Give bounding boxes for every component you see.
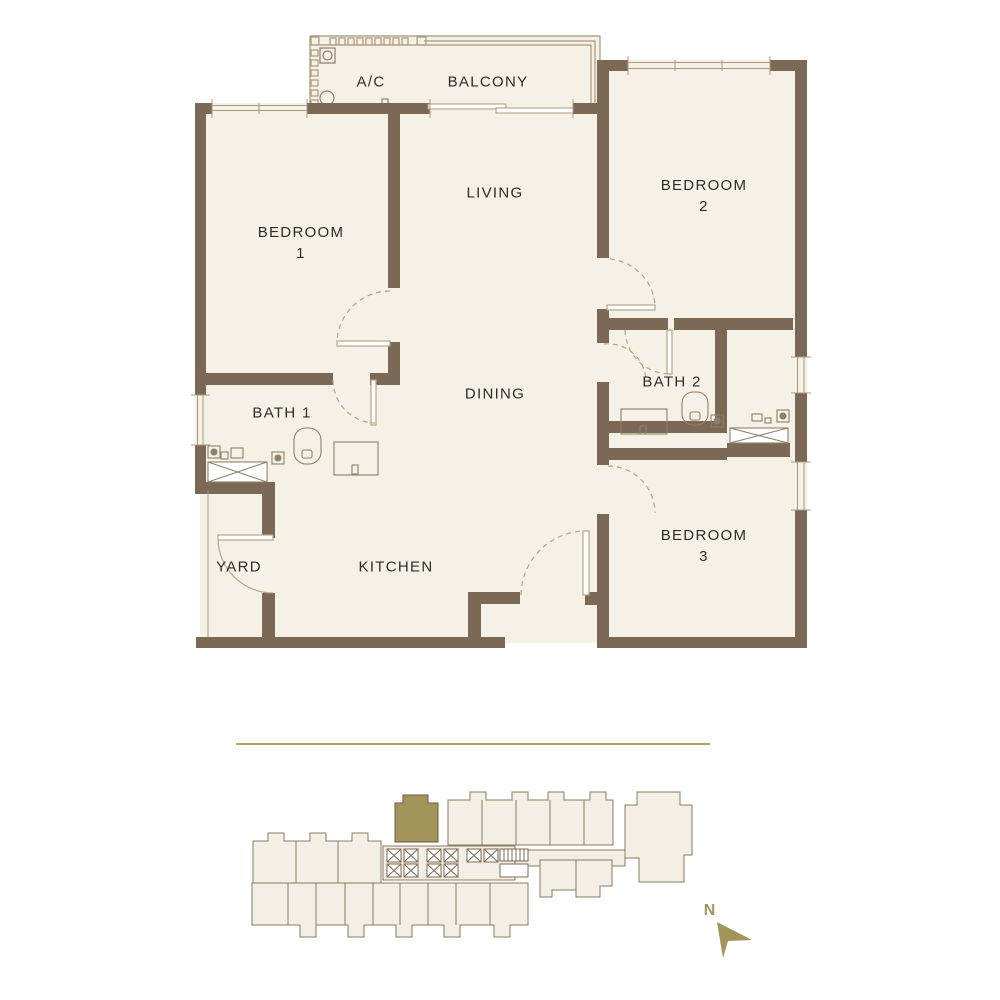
ac-ledge-icon [730,428,788,443]
room-label-living: LIVING [467,183,524,204]
room-label-bath-1: BATH 1 [252,403,311,424]
bedroom-2-number: 2 [661,196,748,217]
room-label-bedroom-1: BEDROOM 1 [258,222,345,264]
site-units-upper-right [448,792,613,845]
north-arrow-icon [717,922,752,958]
floor-plan-drawing [0,0,1000,1000]
bedroom-3-name: BEDROOM [661,525,748,546]
bedroom-1-number: 1 [258,243,345,264]
room-label-balcony: BALCONY [448,72,529,93]
room-label-dining: DINING [465,384,525,405]
room-label-bedroom-2: BEDROOM 2 [661,175,748,217]
divider-line [236,743,710,745]
ac-ledge-icon [208,462,267,482]
site-plan [236,743,752,958]
room-label-ac: A/C [357,72,386,93]
north-label: N [704,902,717,920]
room-label-kitchen: KITCHEN [359,557,434,578]
floor-plan-page: A/C BALCONY LIVING BEDROOM 1 BEDROOM 2 D… [0,0,1000,1000]
bedroom-2-name: BEDROOM [661,175,748,196]
room-label-bath-2: BATH 2 [642,372,701,393]
site-highlighted-unit [395,795,438,842]
site-units-lower [252,883,528,937]
site-stair-icon [500,849,528,861]
room-label-yard: YARD [216,557,262,578]
bedroom-1-name: BEDROOM [258,222,345,243]
site-units-upper-left [253,833,381,883]
room-label-bedroom-3: BEDROOM 3 [661,525,748,567]
bedroom-3-number: 3 [661,546,748,567]
site-unit-far-right [625,792,692,882]
